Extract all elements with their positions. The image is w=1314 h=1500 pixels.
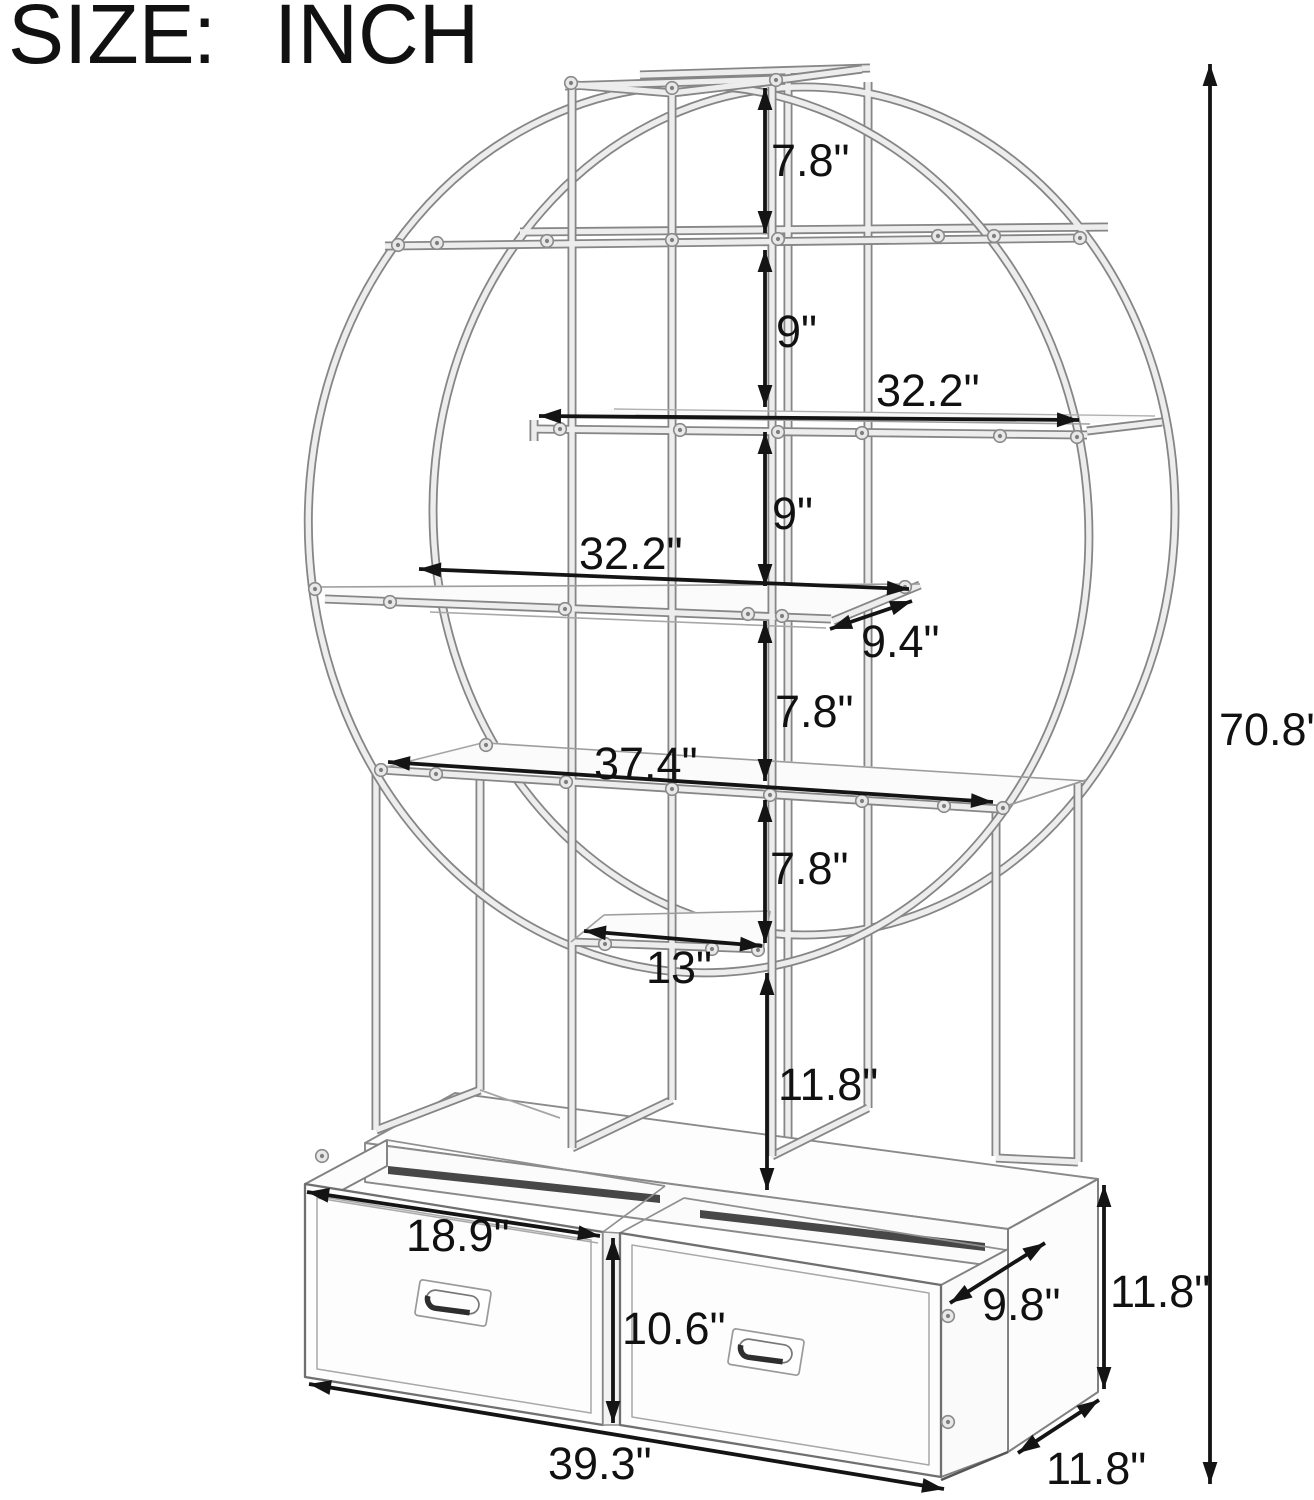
svg-text:9": 9"	[776, 306, 817, 357]
svg-text:32.2": 32.2"	[876, 365, 980, 416]
svg-text:9.8": 9.8"	[982, 1279, 1061, 1330]
svg-text:9": 9"	[772, 488, 813, 539]
svg-text:13": 13"	[646, 942, 712, 993]
svg-text:11.8": 11.8"	[1110, 1266, 1210, 1317]
svg-text::: :	[193, 0, 216, 81]
svg-text:7.8": 7.8"	[775, 686, 854, 737]
svg-text:7.8": 7.8"	[770, 843, 849, 894]
svg-text:11.8": 11.8"	[778, 1059, 878, 1110]
svg-text:10.6": 10.6"	[622, 1303, 726, 1354]
svg-text:70.8": 70.8"	[1219, 704, 1314, 755]
svg-text:INCH: INCH	[274, 0, 479, 81]
svg-text:11.8": 11.8"	[1046, 1443, 1146, 1494]
svg-text:18.9": 18.9"	[406, 1210, 510, 1261]
svg-text:39.3": 39.3"	[548, 1438, 652, 1489]
svg-text:7.8": 7.8"	[771, 135, 850, 186]
svg-text:SIZE: SIZE	[8, 0, 195, 81]
svg-text:37.4": 37.4"	[594, 738, 698, 789]
svg-text:9.4": 9.4"	[861, 616, 940, 667]
svg-text:32.2": 32.2"	[579, 528, 683, 579]
